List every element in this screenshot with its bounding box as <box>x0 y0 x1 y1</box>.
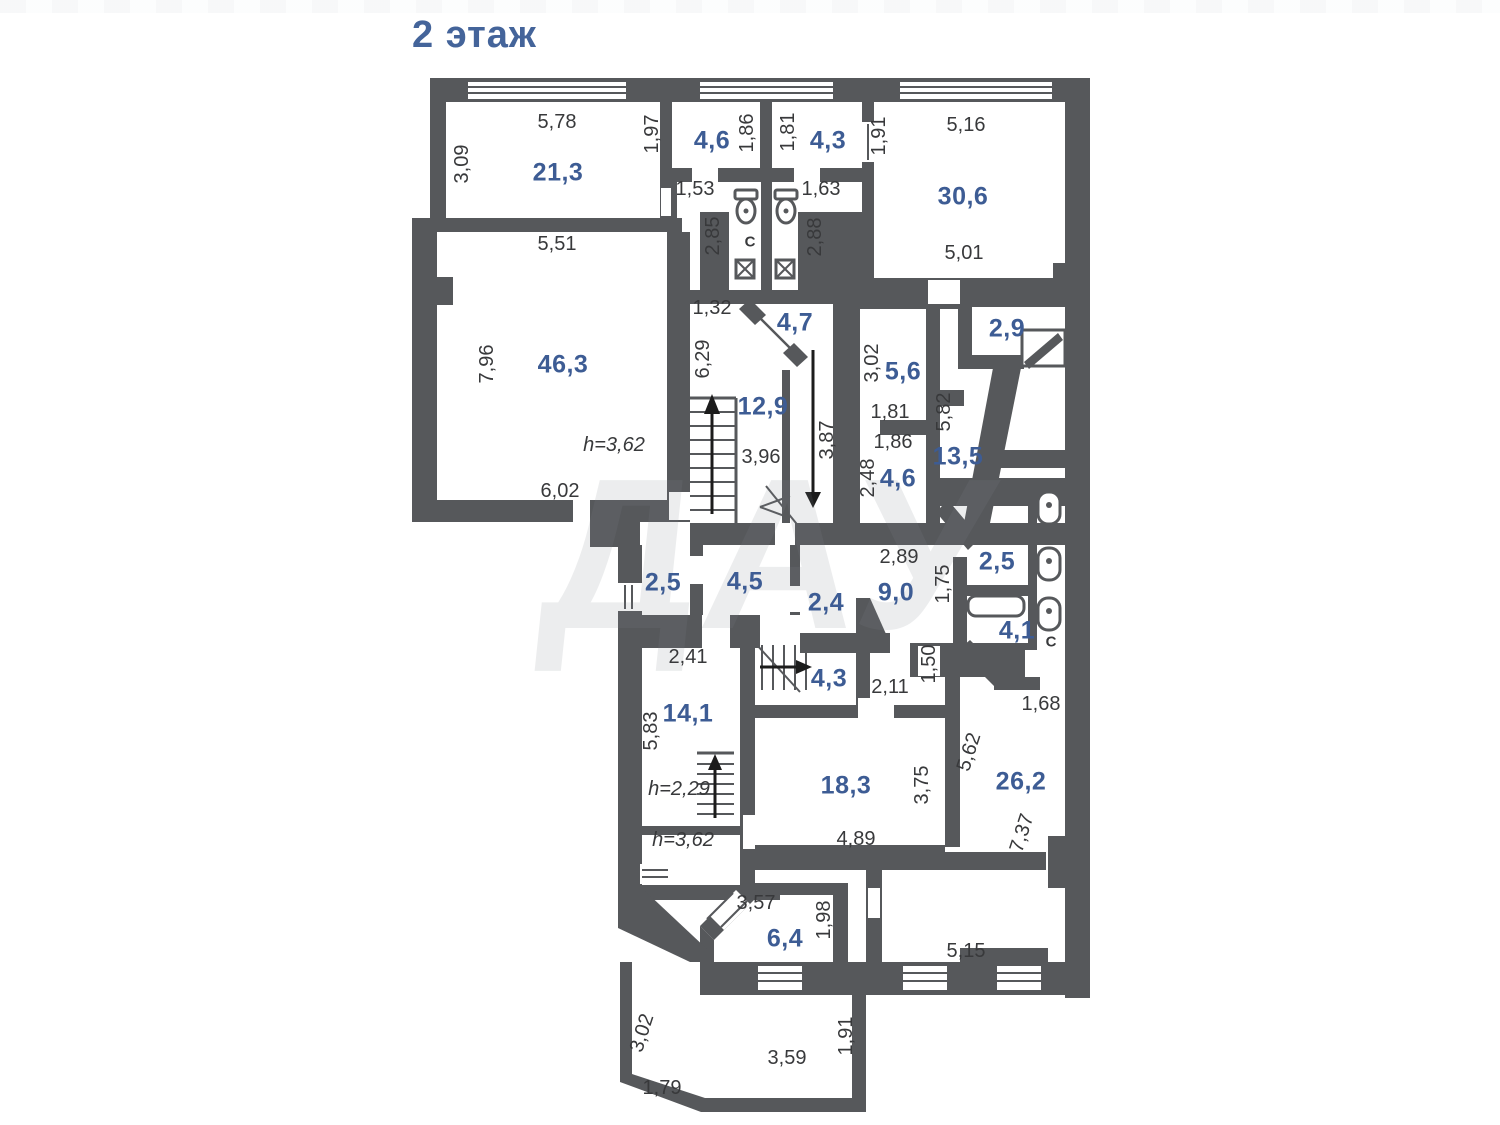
ceiling-height-label: h=3,62 <box>652 830 714 850</box>
room-area-label-2-4: 2,4 <box>808 591 844 616</box>
sink-icon <box>1038 598 1060 630</box>
room-area-label-18-3: 18,3 <box>821 774 872 799</box>
dimension-label: 3,59 <box>768 1048 807 1068</box>
room-area-label-4-3-low: 4,3 <box>811 667 847 692</box>
dimension-label: 4,89 <box>837 829 876 849</box>
room-area-label-4-5: 4,5 <box>727 570 763 595</box>
dimension-label: 5,01 <box>945 243 984 263</box>
dimension-label: 5,51 <box>538 234 577 254</box>
dimension-label: 3,75 <box>912 766 932 805</box>
room-area-label-9-0: 9,0 <box>878 581 914 606</box>
dimension-label: 5,15 <box>947 941 986 961</box>
dimension-label: 2,11 <box>871 677 908 697</box>
drain-icon <box>776 260 794 278</box>
toilet-icon <box>775 190 797 223</box>
ceiling-height-label: h=3,62 <box>583 435 645 455</box>
drain-icon <box>736 260 754 278</box>
room-area-label-12-9: 12,9 <box>738 395 789 420</box>
dimension-label: 1,98 <box>814 901 834 940</box>
room-area-label-5-6: 5,6 <box>885 360 921 385</box>
toilet-icon <box>1038 548 1060 580</box>
dimension-label: 1,91 <box>869 117 889 156</box>
room-area-label-13-5: 13,5 <box>933 445 984 470</box>
room-area-label-46-3: 46,3 <box>538 353 589 378</box>
dimension-label: 2,88 <box>805 218 825 257</box>
dimension-label: 1,86 <box>874 432 913 452</box>
dimension-label: 2,48 <box>858 459 878 498</box>
room-area-label-2-9: 2,9 <box>989 317 1025 342</box>
dimension-label: 5,78 <box>538 112 577 132</box>
room-area-label-21-3: 21,3 <box>533 161 584 186</box>
dimension-label: 1,50 <box>919 645 939 684</box>
toilet-icon <box>1038 492 1060 524</box>
dimension-label: 1,91 <box>836 1017 856 1056</box>
dimension-label: 2,89 <box>880 547 919 567</box>
room-area-label-4-3-top: 4,3 <box>810 129 846 154</box>
room-area-label-4-7: 4,7 <box>777 311 813 336</box>
dimension-label: 1,68 <box>1022 694 1061 714</box>
dimension-label: 3,87 <box>817 421 837 460</box>
floor-plan-page: 2 этаж <box>0 0 1500 1125</box>
dimension-label: 3,02 <box>862 344 882 383</box>
dimension-label: 2,85 <box>703 217 723 256</box>
dimension-label: 1,97 <box>642 115 662 154</box>
room-area-label-4-6-mid: 4,6 <box>880 467 916 492</box>
room-area-label-6-4: 6,4 <box>767 927 803 952</box>
vent-symbol: C <box>1046 635 1057 650</box>
dimension-label: 5,16 <box>947 115 986 135</box>
dimension-label: 1,53 <box>676 179 715 199</box>
dimension-label: 6,02 <box>541 481 580 501</box>
room-area-label-2-5-right: 2,5 <box>979 550 1015 575</box>
dimension-label: 3,09 <box>452 145 472 184</box>
dimension-label: 5,82 <box>934 393 954 432</box>
dimension-label: 1,81 <box>871 402 910 422</box>
room-area-label-2-5-left: 2,5 <box>645 571 681 596</box>
room-area-label-14-1: 14,1 <box>663 702 714 727</box>
room-area-label-4-6-top: 4,6 <box>694 129 730 154</box>
dimension-label: 1,32 <box>693 298 732 318</box>
room-area-label-4-1: 4,1 <box>999 619 1035 644</box>
ceiling-height-label: h=2,29 <box>648 779 710 799</box>
dimension-label: 2,41 <box>669 647 708 667</box>
dimension-label: 1,79 <box>643 1078 682 1098</box>
dimension-label: 1,75 <box>933 565 953 604</box>
dimension-label: 1,81 <box>778 113 798 152</box>
room-area-label-26-2: 26,2 <box>996 770 1047 795</box>
dimension-label: 1,86 <box>737 114 757 153</box>
dimension-label: 1,63 <box>802 179 841 199</box>
dimension-label: 3,96 <box>742 447 781 467</box>
vent-symbol: C <box>745 235 756 250</box>
toilet-icon <box>735 190 757 223</box>
dimension-label: 6,29 <box>693 340 713 379</box>
room-area-label-30-6: 30,6 <box>938 185 989 210</box>
dimension-label: 7,96 <box>477 345 497 384</box>
dimension-label: 3,57 <box>737 893 776 913</box>
dimension-label: 5,83 <box>641 712 661 751</box>
